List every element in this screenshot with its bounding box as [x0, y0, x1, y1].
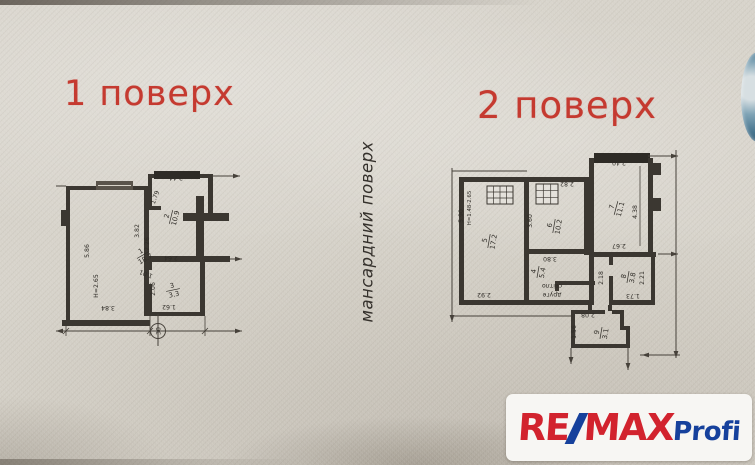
dim-208: 2.08 — [581, 311, 595, 318]
svg-text:6: 6 — [546, 222, 555, 228]
svg-text:7: 7 — [608, 204, 617, 210]
dim-height-1: H=2.65 — [93, 274, 100, 298]
dim-586: 5.86 — [84, 244, 91, 258]
floor2-title: 2 поверх — [477, 84, 657, 127]
svg-text:3.8: 3.8 — [628, 272, 638, 284]
dim-206: 2.06 — [150, 282, 157, 296]
dim-384: 3.84 — [101, 304, 115, 311]
svg-text:9: 9 — [593, 329, 602, 335]
roof-window-icon — [536, 184, 558, 204]
room-label: 7 11.1 — [606, 199, 626, 218]
dim-590: 5.90 — [458, 209, 465, 223]
logo-profi: Profi — [672, 419, 741, 445]
dim-438: 4.38 — [632, 205, 639, 219]
dim-221: 2.21 — [639, 271, 646, 285]
plan1-window-icon — [96, 181, 133, 190]
roof-window-icon — [487, 186, 513, 204]
floorplan-2-drawing: 5.90 H=1.48-2.65 2.92 3.60 2.82 2.40 4.3… — [440, 140, 695, 385]
dim-380: 3.80 — [543, 255, 557, 262]
room-label: 6 10.2 — [545, 217, 564, 235]
floorplan-1-drawing: 30 2.44 1.79 3.82 2.26 2.64 1.01 2.06 1.… — [50, 148, 250, 353]
dim-267: 2.67 — [612, 242, 626, 249]
svg-text:3: 3 — [169, 282, 175, 291]
floor1-title: 1 поверх — [64, 74, 235, 114]
remax-profi-logo: RE MAX Profi — [506, 394, 752, 461]
dim-218: 2.18 — [598, 271, 605, 285]
dim-156: 1.56 — [571, 325, 578, 339]
plan1-dimension-texts: 2.44 1.79 3.82 2.26 2.64 1.01 2.06 1.62 … — [84, 174, 183, 311]
dim-240: 2.40 — [612, 159, 626, 166]
plan2-roof-window-icons — [487, 184, 558, 204]
dim-162: 1.62 — [162, 303, 176, 310]
room-label: 9 3.1 — [592, 326, 611, 341]
room-label: 5 17.2 — [480, 232, 499, 250]
axis-marker-number: 30 — [156, 327, 163, 335]
svg-text:8: 8 — [620, 273, 629, 279]
dim-226: 2.26 — [144, 237, 151, 251]
svg-text:3.1: 3.1 — [601, 328, 611, 340]
svg-text:друге: друге — [542, 291, 561, 298]
svg-text:11.1: 11.1 — [615, 201, 627, 218]
svg-text:5: 5 — [481, 237, 490, 243]
room-label: 4 5.4 — [529, 265, 548, 280]
photo-edge-shadow-bottom — [0, 459, 300, 465]
dim-292: 2.92 — [477, 291, 491, 298]
dim-173: 1.73 — [626, 292, 640, 299]
second-light-note: друге світло — [542, 282, 562, 298]
svg-text:10.2: 10.2 — [553, 219, 564, 235]
svg-text:17.2: 17.2 — [488, 234, 499, 250]
svg-text:світло: світло — [542, 282, 562, 290]
svg-text:5.4: 5.4 — [538, 267, 548, 279]
dim-360: 3.60 — [527, 214, 534, 228]
room-label: 8 3.8 — [619, 270, 638, 285]
svg-text:4: 4 — [530, 268, 539, 274]
room-label: 2 10.9 — [161, 208, 181, 227]
logo-max: MAX — [582, 409, 674, 446]
dim-264: 2.64 — [164, 254, 178, 261]
dim-244: 2.44 — [169, 174, 183, 181]
remax-logo-text: RE MAX Profi — [516, 409, 741, 446]
svg-text:10.9: 10.9 — [170, 210, 181, 227]
dim-height-2: H=1.48-2.65 — [467, 191, 473, 226]
svg-text:3.3: 3.3 — [168, 290, 180, 300]
dim-382: 3.82 — [134, 224, 141, 238]
dim-282: 2.82 — [560, 180, 574, 187]
plan2-walls — [459, 153, 661, 348]
photo-edge-shadow-top — [0, 0, 540, 5]
logo-re: RE — [516, 409, 569, 446]
room-label: 3 3.3 — [164, 281, 181, 301]
svg-text:2: 2 — [163, 213, 172, 219]
mansard-floor-label: мансардний поверх — [358, 149, 395, 323]
